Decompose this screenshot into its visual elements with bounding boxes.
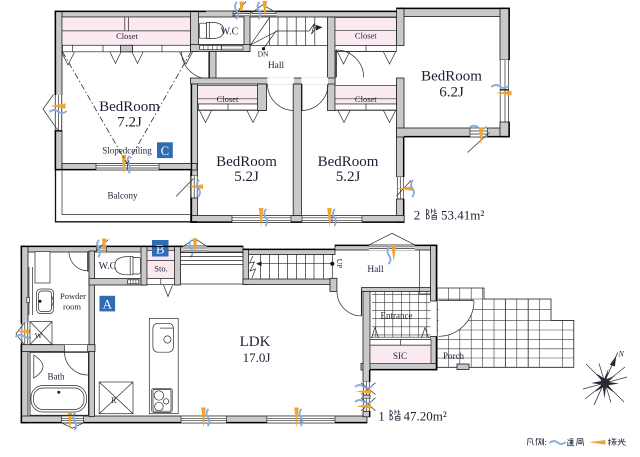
svg-text:BedRoom: BedRoom bbox=[99, 99, 160, 115]
svg-text:W.C: W.C bbox=[99, 261, 117, 272]
svg-text:6.2J: 6.2J bbox=[439, 85, 464, 101]
svg-text:53.41m²: 53.41m² bbox=[441, 208, 484, 223]
svg-text:47.20m²: 47.20m² bbox=[404, 409, 447, 424]
svg-text:N: N bbox=[618, 350, 625, 359]
svg-text:2: 2 bbox=[414, 208, 421, 223]
svg-text:1: 1 bbox=[378, 409, 385, 424]
svg-text:Closet: Closet bbox=[116, 31, 138, 41]
svg-text:Sto.: Sto. bbox=[154, 264, 167, 274]
svg-text:17.0J: 17.0J bbox=[243, 350, 271, 365]
svg-text:A: A bbox=[103, 297, 113, 312]
svg-text:BedRoom: BedRoom bbox=[318, 154, 379, 170]
svg-text:R: R bbox=[111, 396, 117, 405]
svg-text:Slopedceiling: Slopedceiling bbox=[102, 146, 152, 156]
svg-text:Hall: Hall bbox=[367, 265, 384, 275]
svg-text:DN: DN bbox=[258, 50, 269, 59]
svg-text:Closet: Closet bbox=[355, 94, 377, 104]
svg-text:B: B bbox=[156, 241, 165, 256]
svg-text::: : bbox=[545, 437, 547, 447]
svg-text:Closet: Closet bbox=[355, 31, 377, 41]
svg-text:5.2J: 5.2J bbox=[336, 169, 361, 185]
svg-text:BedRoom: BedRoom bbox=[421, 69, 482, 85]
svg-text:W.C: W.C bbox=[221, 27, 239, 38]
svg-text:room: room bbox=[63, 302, 81, 312]
svg-text:Closet: Closet bbox=[217, 94, 239, 104]
svg-text:Powder: Powder bbox=[60, 291, 86, 301]
svg-text:Hall: Hall bbox=[268, 61, 285, 71]
svg-text:W: W bbox=[35, 332, 43, 341]
svg-text:5.2J: 5.2J bbox=[234, 169, 259, 185]
svg-text:Bath: Bath bbox=[48, 372, 65, 382]
svg-text:BedRoom: BedRoom bbox=[216, 154, 277, 170]
svg-text:Porch: Porch bbox=[443, 351, 464, 361]
svg-text:7.2J: 7.2J bbox=[117, 115, 142, 131]
svg-text:Balcony: Balcony bbox=[108, 191, 138, 201]
svg-text:LDK: LDK bbox=[240, 334, 271, 350]
svg-text:Entrance: Entrance bbox=[381, 311, 413, 321]
svg-text:C: C bbox=[161, 144, 169, 158]
svg-text:UP: UP bbox=[335, 259, 344, 269]
svg-text:SIC: SIC bbox=[393, 351, 407, 361]
